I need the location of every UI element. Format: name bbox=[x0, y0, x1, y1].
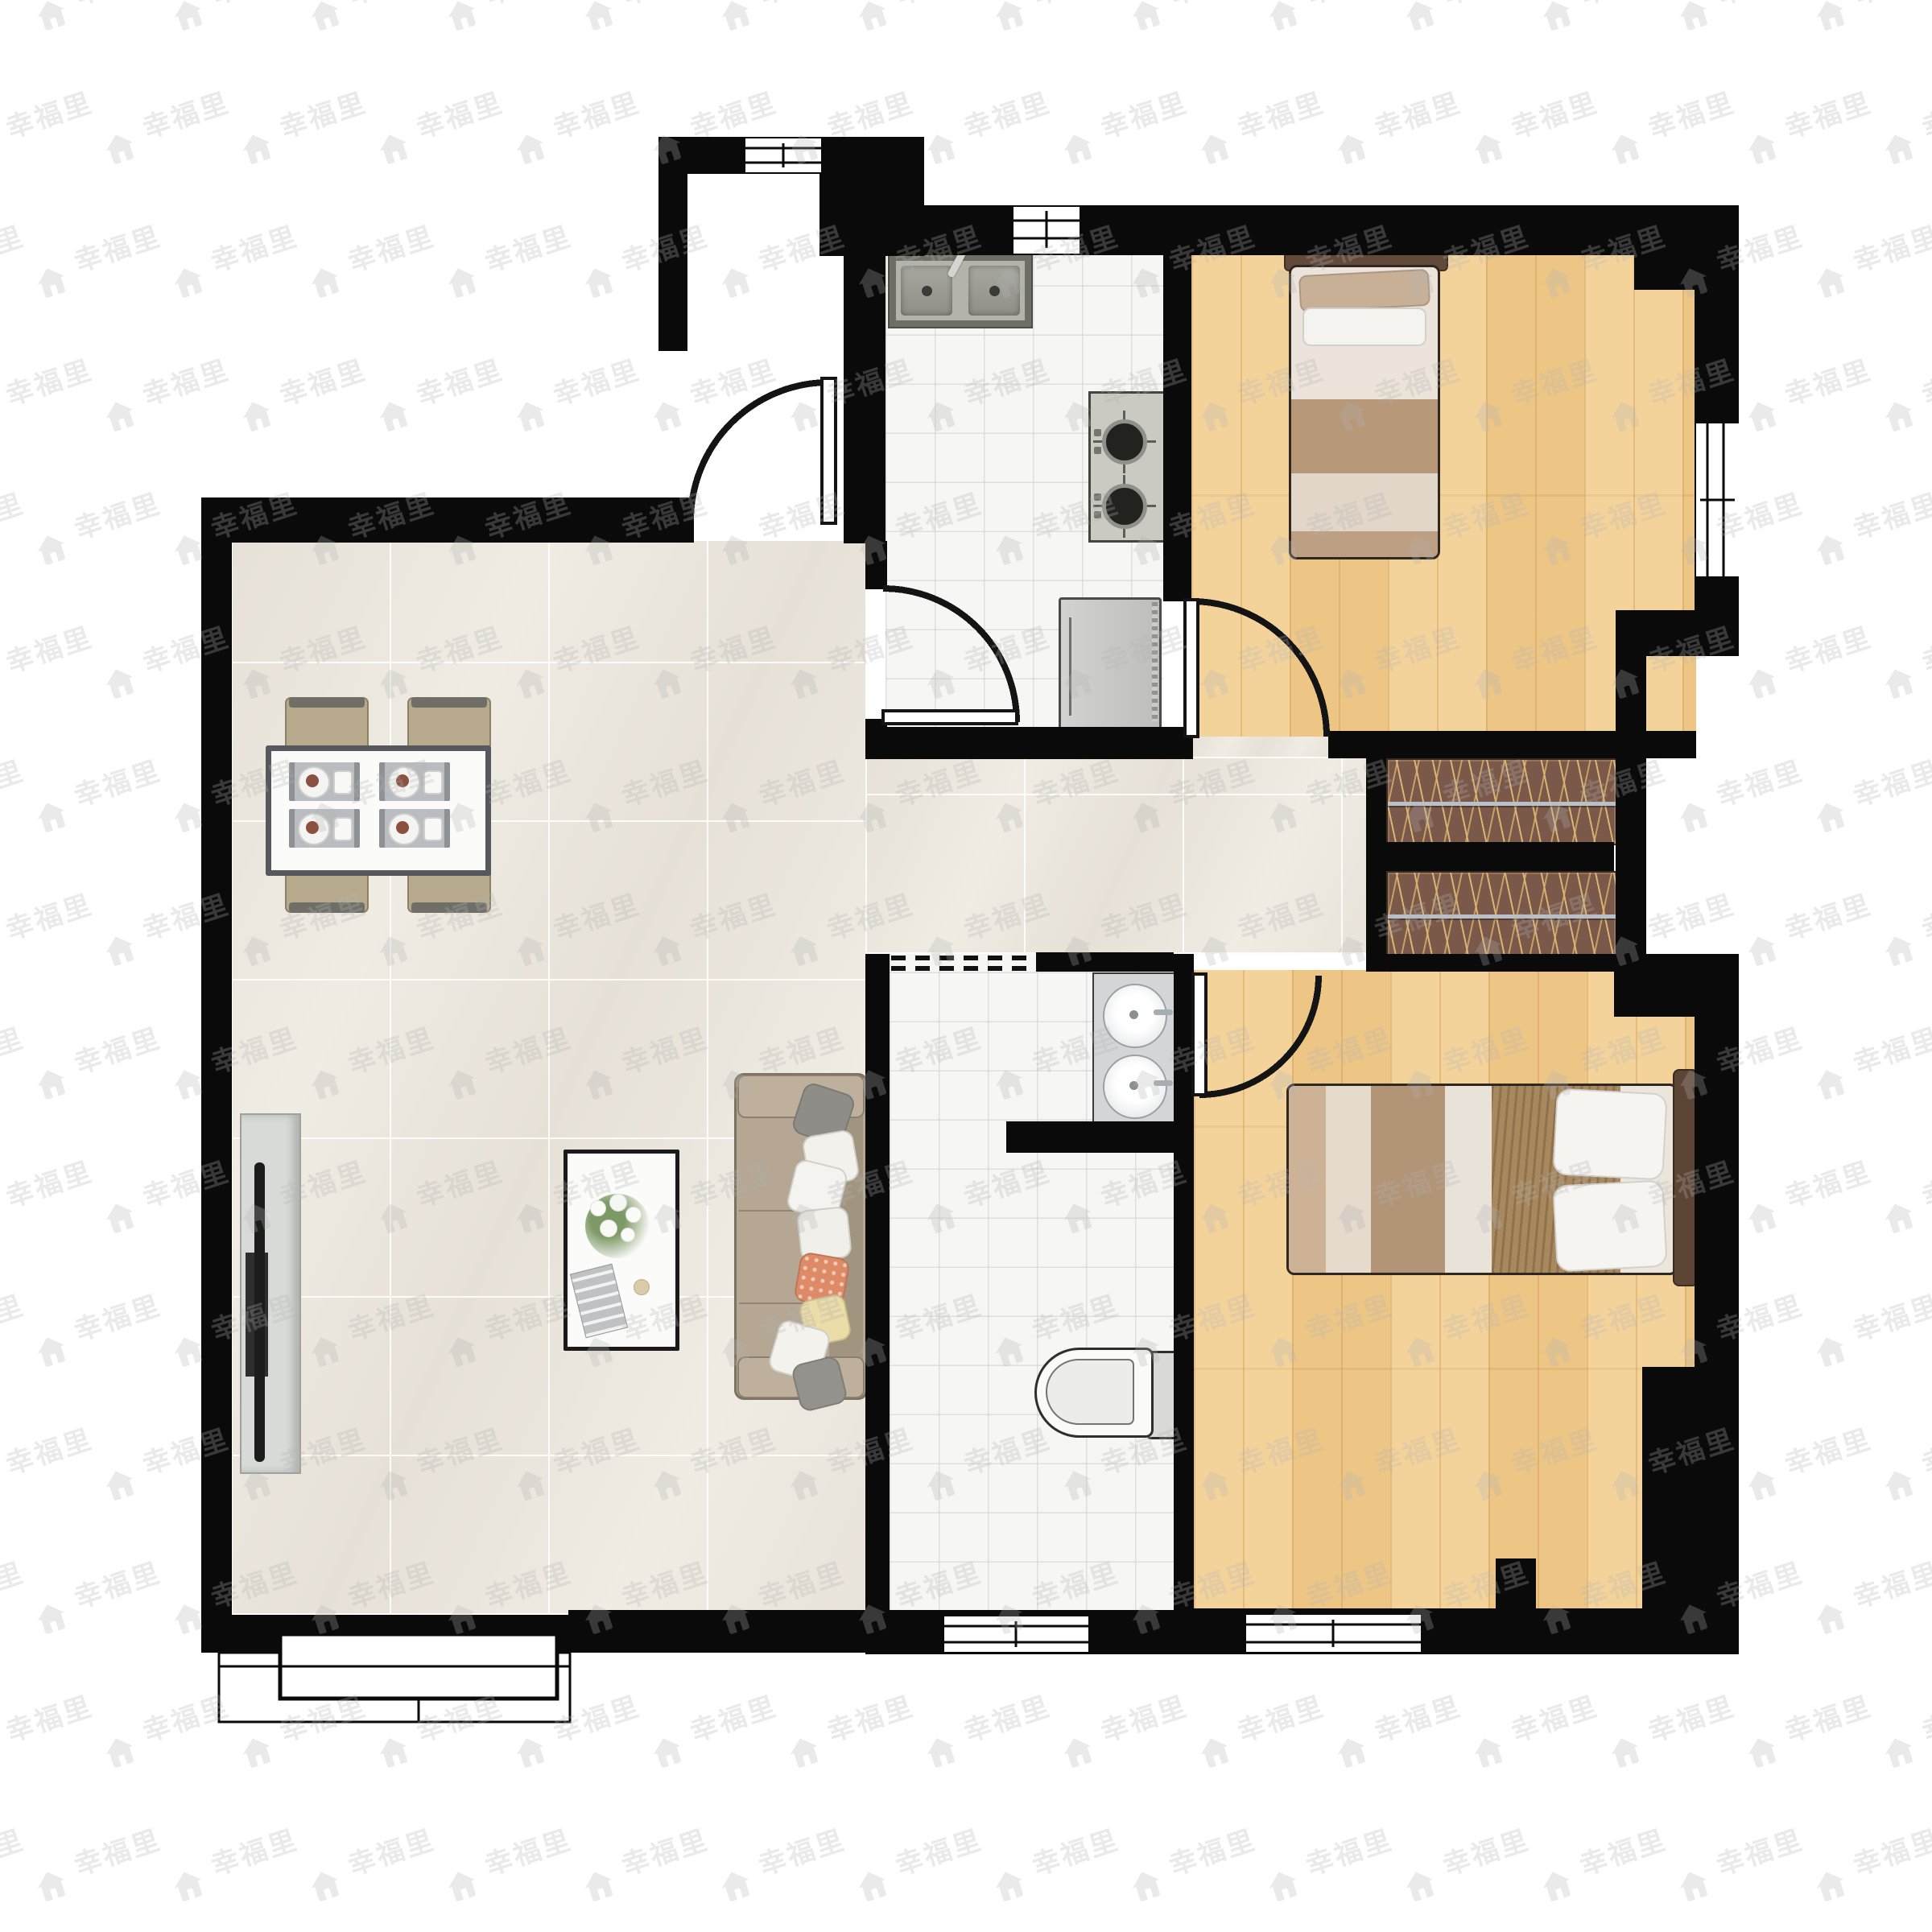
dish-icon bbox=[333, 770, 353, 795]
watermark-text: 幸福里 bbox=[0, 80, 97, 146]
bay-window-pane bbox=[280, 1634, 557, 1699]
dining-chair bbox=[285, 697, 369, 750]
watermark-house-icon bbox=[576, 259, 621, 303]
watermark-house-icon bbox=[987, 1863, 1031, 1907]
watermark-text: 幸福里 bbox=[890, 0, 987, 12]
watermark-text: 幸福里 bbox=[1916, 882, 1932, 947]
wall-segment bbox=[865, 727, 1193, 759]
watermark-text: 幸福里 bbox=[479, 214, 576, 279]
watermark-text: 幸福里 bbox=[0, 749, 29, 814]
watermark-text: 幸福里 bbox=[68, 749, 166, 814]
watermark-text: 幸福里 bbox=[1026, 1818, 1124, 1883]
watermark-text: 幸福里 bbox=[753, 214, 850, 279]
watermark-text: 幸福里 bbox=[1916, 348, 1932, 413]
watermark-text: 幸福里 bbox=[1505, 1684, 1603, 1749]
watermark-text: 幸福里 bbox=[479, 1818, 576, 1883]
watermark-house-icon bbox=[29, 1596, 73, 1640]
wardrobe-rail bbox=[1388, 914, 1616, 919]
coaster-icon bbox=[634, 1279, 650, 1295]
placemat bbox=[379, 809, 450, 848]
watermark-house-icon bbox=[440, 0, 484, 37]
watermark-house-icon bbox=[1192, 126, 1236, 170]
double-bed bbox=[1286, 1063, 1697, 1288]
watermark-house-icon bbox=[782, 1729, 826, 1773]
plate-icon bbox=[388, 766, 420, 799]
watermark-text: 幸福里 bbox=[1711, 481, 1808, 547]
watermark-house-icon bbox=[508, 1729, 552, 1773]
wall-segment bbox=[865, 1610, 1175, 1654]
wall-segment bbox=[658, 137, 687, 351]
watermark-text: 幸福里 bbox=[0, 882, 97, 947]
wardrobe-rail bbox=[1388, 802, 1616, 806]
watermark-house-icon bbox=[1534, 0, 1579, 37]
watermark-house-icon bbox=[29, 259, 73, 303]
watermark-house-icon bbox=[1192, 1729, 1236, 1773]
watermark-house-icon bbox=[1534, 1863, 1579, 1907]
watermark-text: 幸福里 bbox=[1847, 214, 1932, 279]
toilet-seat bbox=[1046, 1359, 1134, 1425]
watermark-text: 幸福里 bbox=[0, 1684, 97, 1749]
watermark-text: 幸福里 bbox=[137, 1150, 234, 1215]
watermark-house-icon bbox=[1876, 927, 1921, 972]
bed-pillow bbox=[1302, 308, 1426, 346]
watermark-text: 幸福里 bbox=[137, 1684, 234, 1749]
wall-segment bbox=[1695, 970, 1739, 1654]
watermark-text: 幸福里 bbox=[616, 0, 713, 12]
watermark-text: 幸福里 bbox=[1847, 1818, 1932, 1883]
watermark-text: 幸福里 bbox=[411, 1684, 508, 1749]
watermark-text: 幸福里 bbox=[1232, 80, 1329, 146]
watermark-house-icon bbox=[97, 1729, 142, 1773]
fridge-handle bbox=[1069, 617, 1071, 716]
fridge-hinge-strip bbox=[1152, 602, 1158, 721]
watermark-house-icon bbox=[1124, 0, 1168, 37]
watermark-text: 幸福里 bbox=[1779, 1417, 1876, 1482]
wardrobe bbox=[1386, 871, 1617, 958]
watermark-house-icon bbox=[1124, 1863, 1168, 1907]
watermark-text: 幸福里 bbox=[753, 1818, 850, 1883]
watermark-house-icon bbox=[1397, 1863, 1442, 1907]
watermark-text: 幸福里 bbox=[1779, 348, 1876, 413]
watermark-house-icon bbox=[850, 0, 894, 37]
watermark-text: 幸福里 bbox=[274, 1684, 371, 1749]
watermark-text: 幸福里 bbox=[68, 1818, 166, 1883]
watermark-house-icon bbox=[303, 0, 347, 37]
bed-blanket-stripe bbox=[1291, 473, 1438, 531]
watermark-house-icon bbox=[1876, 1729, 1921, 1773]
flower-icon bbox=[590, 1200, 606, 1216]
watermark-house-icon bbox=[576, 0, 621, 37]
door-arc bbox=[691, 382, 829, 521]
watermark-text: 幸福里 bbox=[137, 1417, 234, 1482]
watermark-text: 幸福里 bbox=[411, 348, 508, 413]
watermark-house-icon bbox=[645, 393, 689, 437]
faucet-icon bbox=[1154, 1080, 1173, 1086]
watermark-house-icon bbox=[919, 1729, 963, 1773]
watermark-house-icon bbox=[97, 660, 142, 704]
watermark-text: 幸福里 bbox=[274, 80, 371, 146]
drain-icon bbox=[989, 286, 1000, 296]
wall-segment bbox=[201, 1615, 573, 1653]
watermark-house-icon bbox=[1876, 1195, 1921, 1239]
watermark-text: 幸福里 bbox=[0, 1283, 29, 1348]
wall-segment bbox=[865, 954, 890, 1610]
wall-segment bbox=[1174, 1608, 1739, 1654]
faucet-icon bbox=[1154, 1009, 1173, 1015]
watermark-text: 幸福里 bbox=[1574, 1818, 1671, 1883]
watermark-text: 幸福里 bbox=[1437, 1818, 1534, 1883]
watermark-house-icon bbox=[782, 393, 826, 437]
watermark-house-icon bbox=[1740, 660, 1784, 704]
bed-headboard bbox=[1673, 1069, 1699, 1286]
placemat bbox=[289, 809, 360, 848]
corridor-floor bbox=[865, 757, 1366, 954]
watermark-text: 幸福里 bbox=[684, 80, 782, 146]
watermark-text: 幸福里 bbox=[1642, 80, 1740, 146]
watermark-house-icon bbox=[1261, 0, 1305, 37]
stove-burner-icon bbox=[1102, 484, 1147, 529]
bathroom-vanity bbox=[1092, 972, 1177, 1127]
watermark-text: 幸福里 bbox=[0, 1417, 97, 1482]
watermark-text: 幸福里 bbox=[1437, 0, 1534, 12]
watermark-house-icon bbox=[1808, 259, 1852, 303]
watermark-house-icon bbox=[234, 1729, 279, 1773]
wall-segment bbox=[844, 254, 885, 543]
watermark-house-icon bbox=[1466, 126, 1510, 170]
watermark-text: 幸福里 bbox=[684, 348, 782, 413]
watermark-house-icon bbox=[1603, 1729, 1647, 1773]
watermark-text: 幸福里 bbox=[1916, 615, 1932, 680]
watermark-house-icon bbox=[1808, 1328, 1852, 1373]
watermark-text: 幸福里 bbox=[1847, 1283, 1932, 1348]
watermark-text: 幸福里 bbox=[0, 1818, 29, 1883]
watermark-house-icon bbox=[97, 393, 142, 437]
stove-knob bbox=[1094, 511, 1101, 518]
chair-backrest bbox=[411, 902, 487, 913]
coffee-table bbox=[563, 1150, 679, 1351]
watermark-text: 幸福里 bbox=[616, 214, 713, 279]
watermark-house-icon bbox=[1808, 1596, 1852, 1640]
watermark-house-icon bbox=[1740, 927, 1784, 972]
watermark-house-icon bbox=[1329, 1729, 1373, 1773]
watermark-text: 幸福里 bbox=[958, 80, 1055, 146]
watermark-text: 幸福里 bbox=[1163, 1818, 1261, 1883]
watermark-house-icon bbox=[1671, 794, 1715, 838]
watermark-text: 幸福里 bbox=[205, 1818, 303, 1883]
watermark-text: 幸福里 bbox=[0, 1150, 97, 1215]
wall-segment bbox=[1695, 205, 1739, 656]
watermark-house-icon bbox=[303, 1863, 347, 1907]
watermark-house-icon bbox=[97, 1195, 142, 1239]
watermark-house-icon bbox=[166, 259, 210, 303]
watermark-house-icon bbox=[1876, 126, 1921, 170]
stove-burner-icon bbox=[1102, 419, 1147, 464]
watermark-text: 幸福里 bbox=[958, 1684, 1055, 1749]
watermark-text: 幸福里 bbox=[205, 0, 303, 12]
single-bed bbox=[1284, 244, 1445, 559]
watermark-text: 幸福里 bbox=[1711, 1283, 1808, 1348]
wall-segment bbox=[568, 1610, 867, 1653]
watermark-text: 幸福里 bbox=[1847, 1016, 1932, 1081]
watermark-text: 幸福里 bbox=[0, 1550, 29, 1616]
watermark-text: 幸福里 bbox=[821, 1684, 919, 1749]
watermark-text: 幸福里 bbox=[1916, 1684, 1932, 1749]
watermark-text: 幸福里 bbox=[547, 348, 645, 413]
watermark-house-icon bbox=[1740, 1462, 1784, 1506]
watermark-house-icon bbox=[919, 126, 963, 170]
watermark-text: 幸福里 bbox=[1095, 1684, 1192, 1749]
window bbox=[944, 1616, 1088, 1652]
watermark-text: 幸福里 bbox=[753, 0, 850, 12]
dining-chair bbox=[407, 697, 491, 750]
watermark-house-icon bbox=[440, 1863, 484, 1907]
watermark-text: 幸福里 bbox=[684, 1684, 782, 1749]
watermark-text: 幸福里 bbox=[0, 481, 29, 547]
watermark-house-icon bbox=[1466, 1729, 1510, 1773]
tv-icon bbox=[254, 1162, 265, 1462]
bed-pillow bbox=[1552, 1179, 1667, 1272]
watermark-text: 幸福里 bbox=[342, 1818, 440, 1883]
watermark-text: 幸福里 bbox=[1368, 1684, 1466, 1749]
watermark-house-icon bbox=[850, 1863, 894, 1907]
watermark-house-icon bbox=[97, 1462, 142, 1506]
watermark-house-icon bbox=[782, 126, 826, 170]
watermark-house-icon bbox=[508, 393, 552, 437]
watermark-house-icon bbox=[1261, 1863, 1305, 1907]
watermark-text: 幸福里 bbox=[68, 214, 166, 279]
watermark-house-icon bbox=[97, 126, 142, 170]
watermark-text: 幸福里 bbox=[205, 481, 303, 547]
watermark-text: 幸福里 bbox=[1847, 481, 1932, 547]
watermark-text: 幸福里 bbox=[1916, 1417, 1932, 1482]
toilet bbox=[1034, 1343, 1175, 1443]
watermark-text: 幸福里 bbox=[137, 80, 234, 146]
plate-icon bbox=[298, 766, 330, 799]
watermark-text: 幸福里 bbox=[547, 1684, 645, 1749]
wall-segment bbox=[201, 497, 694, 543]
watermark-text: 幸福里 bbox=[205, 214, 303, 279]
watermark-text: 幸福里 bbox=[0, 1016, 29, 1081]
watermark-text: 幸福里 bbox=[1711, 1016, 1808, 1081]
watermark-text: 幸福里 bbox=[137, 615, 234, 680]
placemat bbox=[379, 762, 450, 801]
dish-icon bbox=[333, 817, 353, 841]
watermark-house-icon bbox=[508, 126, 552, 170]
flower-icon bbox=[600, 1220, 617, 1237]
refrigerator bbox=[1059, 597, 1162, 731]
watermark-text: 幸福里 bbox=[1711, 749, 1808, 814]
flower-icon bbox=[625, 1207, 642, 1223]
watermark-text: 幸福里 bbox=[0, 0, 29, 12]
watermark-text: 幸福里 bbox=[1779, 1150, 1876, 1215]
stove-knob bbox=[1094, 447, 1101, 454]
wall-segment bbox=[1163, 254, 1191, 601]
flower-icon bbox=[609, 1194, 627, 1212]
watermark-text: 幸福里 bbox=[1163, 0, 1261, 12]
watermark-house-icon bbox=[1876, 1462, 1921, 1506]
watermark-house-icon bbox=[29, 794, 73, 838]
watermark-house-icon bbox=[1397, 0, 1442, 37]
bed-blanket-stripe bbox=[1326, 1086, 1371, 1273]
watermark-house-icon bbox=[97, 927, 142, 972]
watermark-house-icon bbox=[440, 259, 484, 303]
bedroom-top-threshold bbox=[1191, 734, 1328, 758]
watermark-house-icon bbox=[713, 259, 758, 303]
watermark-text: 幸福里 bbox=[821, 80, 919, 146]
chair-backrest bbox=[289, 697, 365, 708]
dish-icon bbox=[423, 770, 443, 795]
watermark-house-icon bbox=[576, 1863, 621, 1907]
watermark-house-icon bbox=[1671, 0, 1715, 37]
watermark-house-icon bbox=[1671, 1863, 1715, 1907]
watermark-house-icon bbox=[1740, 1195, 1784, 1239]
watermark-text: 幸福里 bbox=[0, 615, 97, 680]
watermark-house-icon bbox=[166, 1061, 210, 1105]
watermark-text: 幸福里 bbox=[0, 214, 29, 279]
bed-blanket-stripe bbox=[1445, 1086, 1492, 1273]
watermark-text: 幸福里 bbox=[1847, 1550, 1932, 1616]
watermark-text: 幸福里 bbox=[342, 481, 440, 547]
watermark-text: 幸福里 bbox=[68, 1016, 166, 1081]
watermark-text: 幸福里 bbox=[137, 348, 234, 413]
watermark-house-icon bbox=[29, 526, 73, 571]
watermark-text: 幸福里 bbox=[0, 348, 97, 413]
window bbox=[1696, 423, 1739, 576]
watermark-house-icon bbox=[166, 794, 210, 838]
watermark-text: 幸福里 bbox=[68, 1283, 166, 1348]
watermark-text: 幸福里 bbox=[1779, 80, 1876, 146]
watermark-house-icon bbox=[645, 1729, 689, 1773]
watermark-house-icon bbox=[371, 393, 415, 437]
watermark-text: 幸福里 bbox=[1300, 0, 1397, 12]
watermark-text: 幸福里 bbox=[1095, 80, 1192, 146]
watermark-text: 幸福里 bbox=[1916, 1150, 1932, 1215]
plate-icon bbox=[388, 813, 420, 845]
watermark-text: 幸福里 bbox=[479, 0, 576, 12]
watermark-house-icon bbox=[1808, 1061, 1852, 1105]
watermark-house-icon bbox=[713, 0, 758, 37]
watermark-text: 幸福里 bbox=[1779, 882, 1876, 947]
watermark-text: 幸福里 bbox=[342, 214, 440, 279]
drain-icon bbox=[1129, 1081, 1138, 1090]
watermark-text: 幸福里 bbox=[547, 80, 645, 146]
watermark-house-icon bbox=[1055, 1729, 1100, 1773]
watermark-text: 幸福里 bbox=[753, 481, 850, 547]
wall-segment bbox=[1366, 731, 1386, 972]
watermark-text: 幸福里 bbox=[1026, 0, 1124, 12]
watermark-house-icon bbox=[1808, 0, 1852, 37]
watermark-text: 幸福里 bbox=[1711, 214, 1808, 279]
stove-knob bbox=[1094, 429, 1101, 436]
watermark-house-icon bbox=[166, 1596, 210, 1640]
watermark-house-icon bbox=[303, 259, 347, 303]
watermark-house-icon bbox=[29, 1328, 73, 1373]
watermark-house-icon bbox=[29, 1061, 73, 1105]
plate-icon bbox=[298, 813, 330, 845]
watermark-house-icon bbox=[166, 526, 210, 571]
dining-table bbox=[266, 745, 491, 876]
wall-segment bbox=[865, 719, 887, 759]
door-leaf bbox=[822, 378, 836, 523]
watermark-house-icon bbox=[987, 0, 1031, 37]
watermark-house-icon bbox=[1876, 393, 1921, 437]
wall-segment bbox=[658, 137, 918, 174]
window bbox=[1246, 1615, 1421, 1652]
placemat bbox=[289, 762, 360, 801]
watermark-text: 幸福里 bbox=[1847, 0, 1932, 12]
watermark-text: 幸福里 bbox=[1779, 615, 1876, 680]
watermark-house-icon bbox=[1055, 126, 1100, 170]
watermark-house-icon bbox=[29, 1863, 73, 1907]
watermark-text: 幸福里 bbox=[479, 481, 576, 547]
bed-blanket-stripe bbox=[1289, 1086, 1326, 1273]
watermark-text: 幸福里 bbox=[411, 80, 508, 146]
watermark-text: 幸福里 bbox=[342, 0, 440, 12]
watermark-house-icon bbox=[1808, 794, 1852, 838]
watermark-text: 幸福里 bbox=[68, 481, 166, 547]
watermark-house-icon bbox=[1808, 1863, 1852, 1907]
watermark-house-icon bbox=[1603, 126, 1647, 170]
watermark-text: 幸福里 bbox=[1642, 882, 1740, 947]
watermark-text: 幸福里 bbox=[1300, 1818, 1397, 1883]
watermark-text: 幸福里 bbox=[1232, 1684, 1329, 1749]
watermark-text: 幸福里 bbox=[1574, 0, 1671, 12]
floor-plan: 幸福里幸福里幸福里幸福里幸福里幸福里幸福里幸福里幸福里幸福里幸福里幸福里幸福里幸… bbox=[0, 0, 1932, 1932]
watermark-house-icon bbox=[166, 1863, 210, 1907]
dish-icon bbox=[423, 817, 443, 841]
bed-blanket-stripe bbox=[1291, 531, 1438, 557]
watermark-text: 幸福里 bbox=[890, 1818, 987, 1883]
drain-icon bbox=[922, 286, 932, 296]
chair-backrest bbox=[411, 697, 487, 708]
drain-icon bbox=[1129, 1010, 1138, 1019]
watermark-house-icon bbox=[234, 126, 279, 170]
watermark-text: 幸福里 bbox=[1847, 749, 1932, 814]
watermark-text: 幸福里 bbox=[1711, 1550, 1808, 1616]
flower-icon bbox=[621, 1228, 635, 1242]
kitchen-sink bbox=[888, 253, 1033, 328]
watermark-house-icon bbox=[1740, 393, 1784, 437]
watermark-text: 幸福里 bbox=[1368, 80, 1466, 146]
wall-segment bbox=[201, 497, 232, 1653]
wardrobe bbox=[1386, 758, 1617, 845]
watermark-house-icon bbox=[1740, 1729, 1784, 1773]
bed-frame bbox=[1286, 1084, 1678, 1275]
watermark-text: 幸福里 bbox=[137, 882, 234, 947]
gas-stove bbox=[1088, 391, 1166, 543]
watermark-text: 幸福里 bbox=[274, 348, 371, 413]
watermark-house-icon bbox=[371, 1729, 415, 1773]
watermark-house-icon bbox=[1808, 526, 1852, 571]
watermark-house-icon bbox=[166, 1328, 210, 1373]
wall-segment bbox=[865, 541, 887, 589]
watermark-text: 幸福里 bbox=[1505, 80, 1603, 146]
watermark-text: 幸福里 bbox=[1711, 1818, 1808, 1883]
watermark-house-icon bbox=[371, 126, 415, 170]
bed-pillow bbox=[1552, 1088, 1667, 1180]
watermark-text: 幸福里 bbox=[68, 0, 166, 12]
watermark-text: 幸福里 bbox=[1916, 80, 1932, 146]
watermark-text: 幸福里 bbox=[1779, 1684, 1876, 1749]
window bbox=[745, 138, 821, 172]
bed-blanket-stripe bbox=[1291, 399, 1438, 473]
sofa bbox=[734, 1073, 868, 1400]
stove-knob bbox=[1094, 493, 1101, 501]
watermark-house-icon bbox=[713, 1863, 758, 1907]
watermark-house-icon bbox=[645, 126, 689, 170]
watermark-house-icon bbox=[1329, 126, 1373, 170]
watermark-house-icon bbox=[29, 0, 73, 37]
